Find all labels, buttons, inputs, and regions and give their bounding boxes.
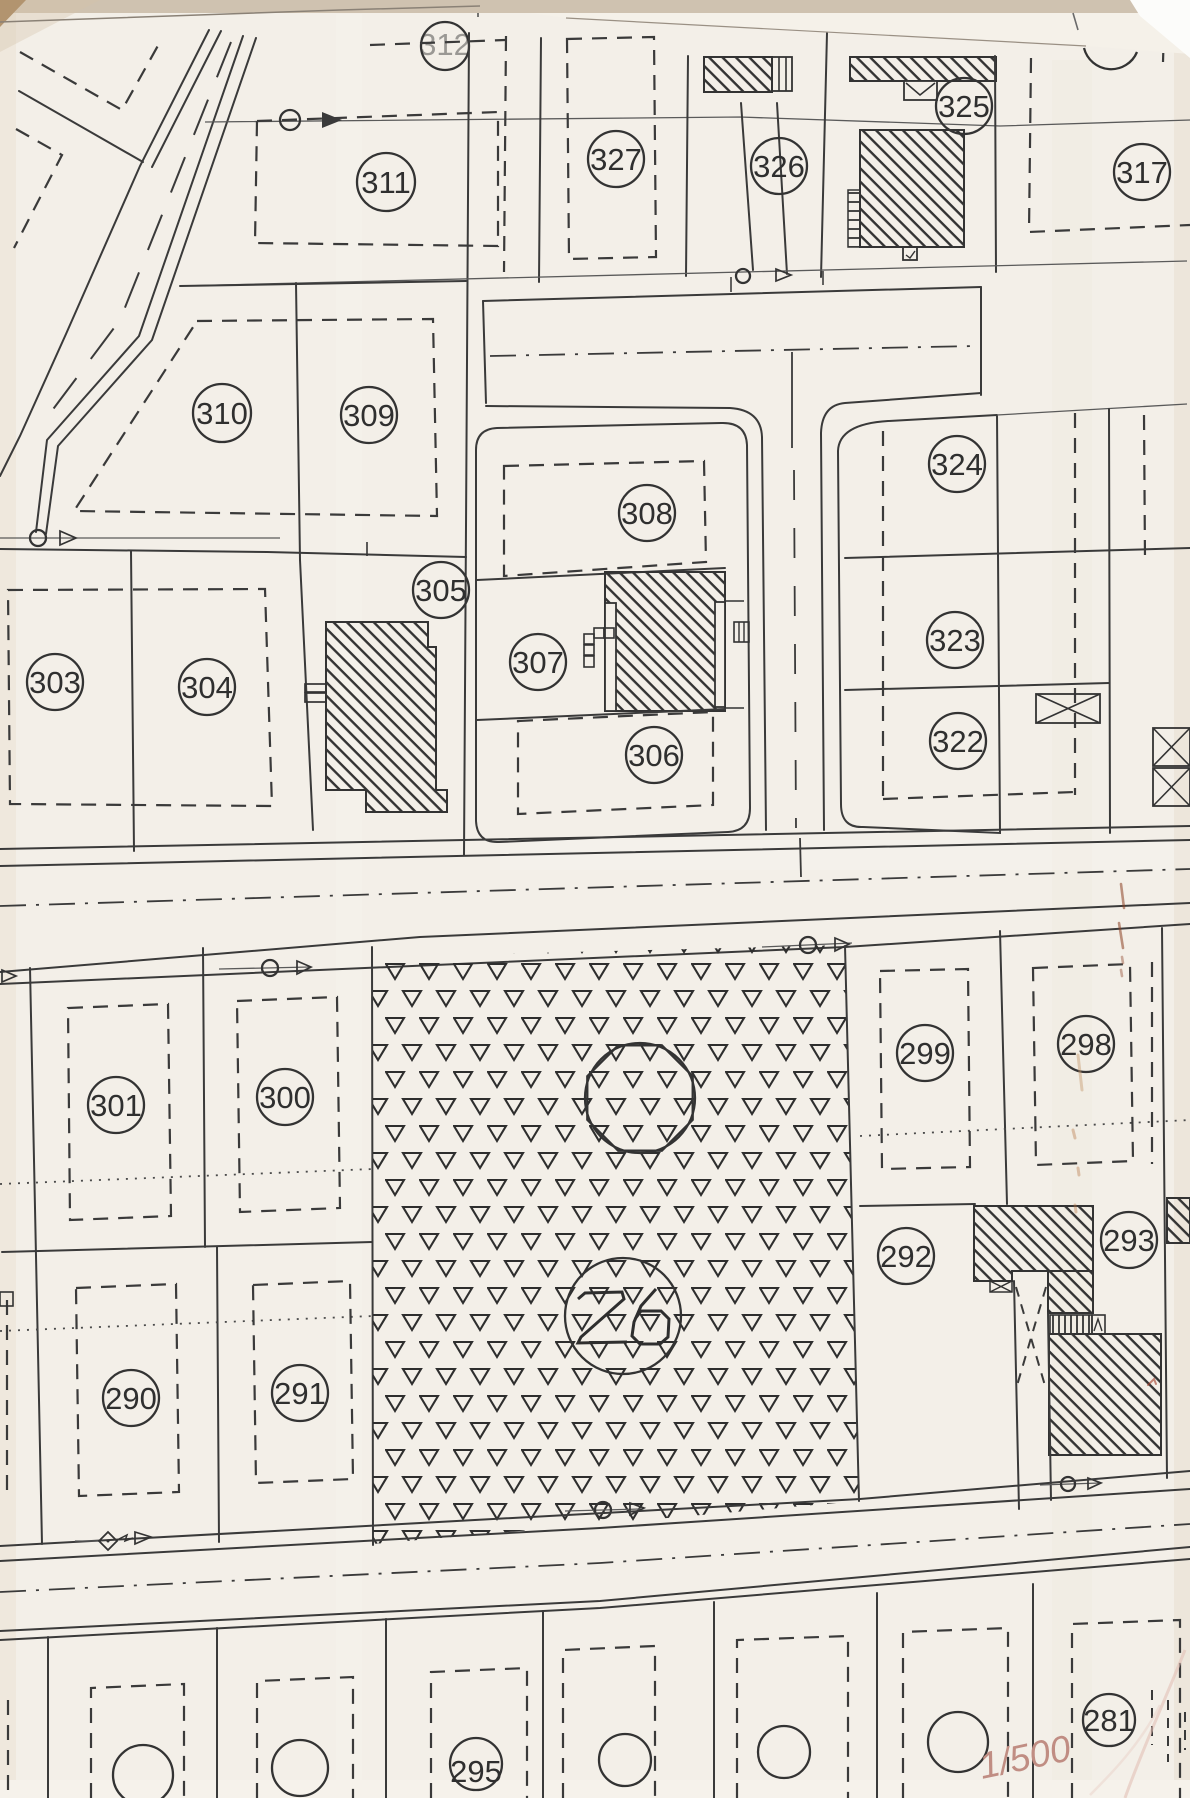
svg-text:306: 306 [628, 738, 680, 773]
svg-text:304: 304 [181, 670, 233, 705]
svg-text:295: 295 [450, 1754, 502, 1789]
svg-text:298: 298 [1060, 1027, 1112, 1062]
svg-text:299: 299 [899, 1036, 951, 1071]
svg-text:326: 326 [753, 149, 805, 184]
svg-text:290: 290 [105, 1381, 157, 1416]
svg-text:291: 291 [274, 1376, 326, 1411]
svg-text:310: 310 [196, 396, 248, 431]
svg-text:293: 293 [1103, 1223, 1155, 1258]
svg-text:309: 309 [343, 398, 395, 433]
svg-text:322: 322 [932, 724, 984, 759]
svg-text:311: 311 [361, 165, 410, 200]
svg-text:308: 308 [621, 496, 673, 531]
svg-text:292: 292 [880, 1239, 932, 1274]
svg-text:327: 327 [590, 142, 642, 177]
svg-text:300: 300 [259, 1080, 311, 1115]
svg-text:307: 307 [512, 645, 564, 680]
svg-text:305: 305 [415, 573, 467, 608]
svg-text:312: 312 [419, 27, 471, 62]
svg-text:317: 317 [1116, 155, 1168, 190]
svg-text:324: 324 [931, 447, 983, 482]
svg-text:281: 281 [1083, 1703, 1135, 1738]
svg-text:303: 303 [29, 665, 81, 700]
svg-text:323: 323 [929, 623, 981, 658]
svg-text:325: 325 [938, 89, 990, 124]
svg-text:301: 301 [90, 1088, 142, 1123]
